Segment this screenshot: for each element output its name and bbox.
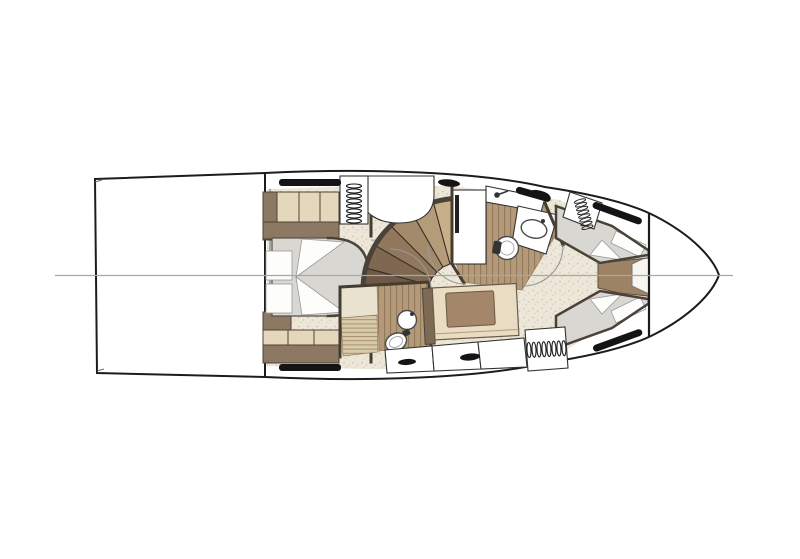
settee-cushion — [446, 291, 496, 327]
yacht-floorplan — [0, 0, 800, 559]
sink-faucet-dot — [541, 219, 545, 223]
locker-box — [340, 176, 368, 224]
shower-pan — [341, 286, 377, 318]
hull-window-icon — [279, 364, 341, 371]
wardrobe-stbd-band — [263, 345, 339, 363]
sink-faucet-dot — [410, 312, 414, 316]
settee — [422, 284, 519, 345]
cabinet-appliance — [455, 195, 459, 233]
drawer-panel — [478, 338, 527, 369]
wardrobe-port-doors — [277, 192, 339, 222]
master-pillow — [266, 284, 292, 313]
shower-teak-mat — [341, 315, 378, 356]
wardrobe-port-band — [263, 222, 339, 239]
hull-window-icon — [279, 179, 341, 186]
wardrobe-stbd-doors — [263, 330, 339, 345]
yacht-floorplan-canvas — [0, 0, 800, 559]
